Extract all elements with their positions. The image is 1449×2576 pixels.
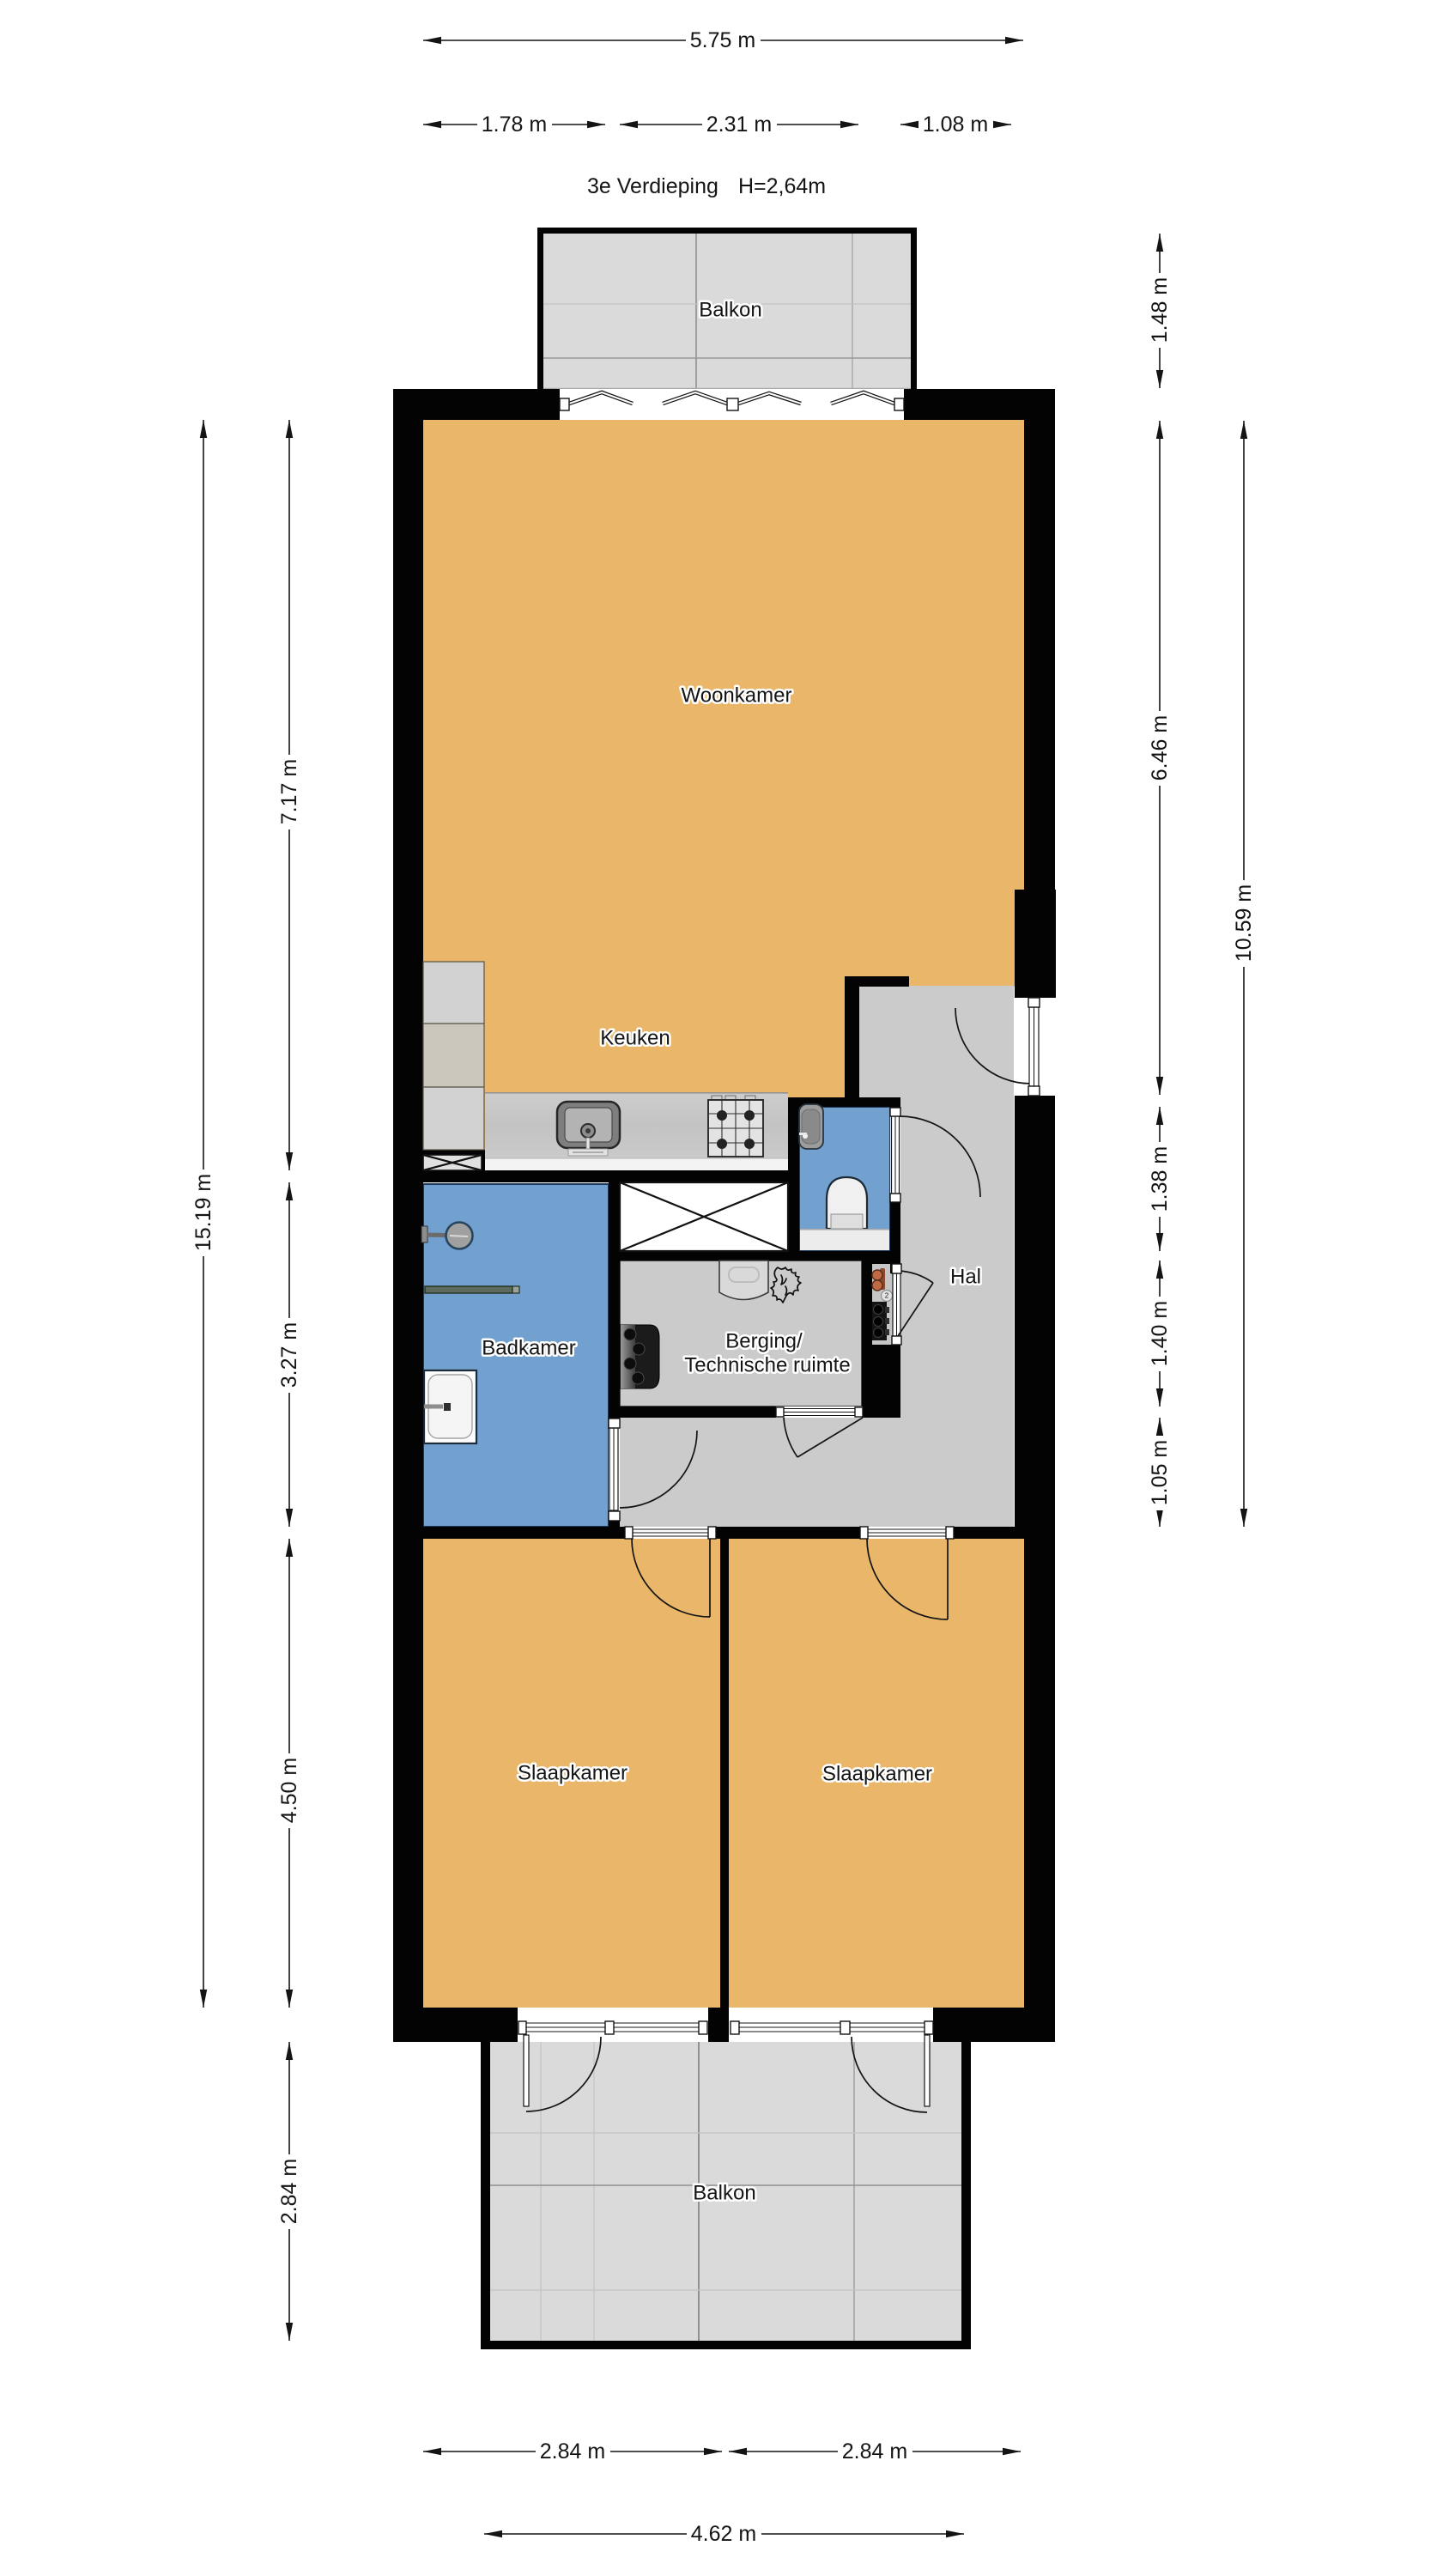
svg-text:Woonkamer: Woonkamer (682, 684, 792, 708)
svg-text:1.78 m: 1.78 m (482, 112, 547, 137)
svg-text:2: 2 (885, 1292, 889, 1300)
svg-text:1.38 m: 1.38 m (1148, 1146, 1172, 1212)
svg-text:Balkon: Balkon (693, 2182, 755, 2205)
svg-text:2.84 m: 2.84 m (277, 2159, 301, 2224)
svg-text:7.17 m: 7.17 m (277, 759, 301, 824)
svg-text:Berging/: Berging/ (725, 1330, 803, 1353)
svg-text:Slaapkamer: Slaapkamer (518, 1762, 627, 1785)
svg-text:2.84 m: 2.84 m (842, 2439, 907, 2464)
svg-text:4.62 m: 4.62 m (691, 2522, 756, 2546)
svg-text:2.31 m: 2.31 m (706, 112, 772, 137)
svg-text:Balkon: Balkon (699, 299, 761, 322)
svg-text:15.19 m: 15.19 m (191, 1174, 215, 1251)
svg-text:3.27 m: 3.27 m (277, 1322, 301, 1388)
svg-text:H=2,64m: H=2,64m (738, 174, 826, 198)
svg-text:6.46 m: 6.46 m (1148, 715, 1172, 781)
svg-text:Slaapkamer: Slaapkamer (822, 1763, 932, 1786)
svg-text:2.84 m: 2.84 m (540, 2439, 605, 2464)
svg-text:1.40 m: 1.40 m (1148, 1301, 1172, 1366)
svg-text:Keuken: Keuken (600, 1027, 670, 1050)
svg-text:1.48 m: 1.48 m (1148, 277, 1172, 343)
svg-text:3e Verdieping: 3e Verdieping (587, 174, 718, 198)
svg-text:1.08 m: 1.08 m (923, 112, 988, 137)
svg-text:4.50 m: 4.50 m (277, 1758, 301, 1823)
svg-text:Technische ruimte: Technische ruimte (684, 1354, 850, 1377)
svg-text:Hal: Hal (950, 1266, 981, 1289)
svg-text:1.05 m: 1.05 m (1148, 1440, 1172, 1505)
svg-text:10.59 m: 10.59 m (1232, 884, 1256, 962)
svg-text:5.75 m: 5.75 m (690, 28, 755, 52)
svg-text:Badkamer: Badkamer (482, 1337, 575, 1360)
